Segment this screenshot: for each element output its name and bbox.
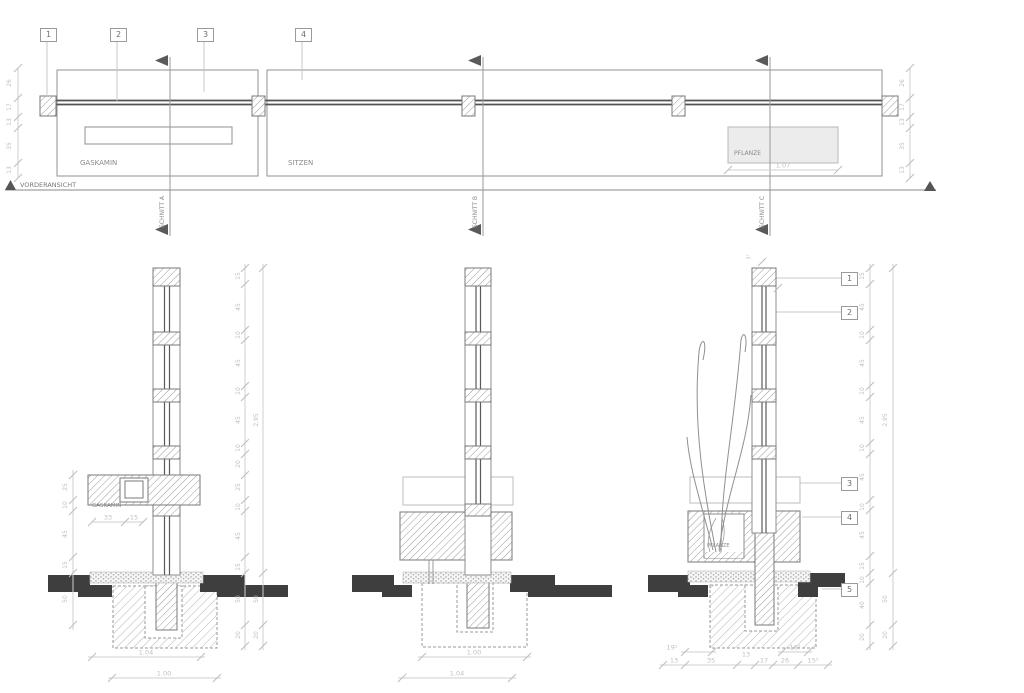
dim-label: 26 — [7, 79, 13, 87]
cut-label-a: SCHNITT A — [160, 196, 166, 228]
architectural-drawing-sheet: 1 2 3 4 GASKAMIN SITZEN PFLANZE 1.07 VOR… — [0, 0, 1024, 693]
dim-104-a: 1.04 — [139, 650, 153, 657]
dim-overall: 2.95 — [883, 413, 889, 426]
pflanze-section-label: PFLANZE — [707, 544, 730, 549]
dim-label: 26 — [900, 79, 906, 87]
gravel-b — [403, 572, 511, 583]
dim-33: 33 — [104, 515, 112, 522]
dim-label: 19⁵ — [667, 645, 678, 652]
dim-label: 13 — [7, 118, 13, 126]
dim-label: 35 — [7, 142, 13, 150]
dim-label: 10 — [236, 503, 242, 511]
dim-label: 45 — [236, 359, 242, 367]
post-a — [153, 268, 180, 575]
dim-100-b: 1.00 — [467, 650, 481, 657]
dim-label: 15⁵ — [808, 658, 819, 665]
dim-15: 15 — [130, 515, 138, 522]
dim-label: 13 — [900, 166, 906, 174]
dim-label: 45 — [860, 473, 866, 481]
dim-label: 45 — [860, 303, 866, 311]
dim-label: 20 — [236, 460, 242, 468]
technical-drawing-canvas — [0, 0, 1024, 693]
dim-label: 45 — [860, 359, 866, 367]
dim-label: 10 — [63, 501, 69, 509]
dim-label: 15 — [236, 563, 242, 571]
gaskamin-section-label: GASKAMIN — [92, 504, 121, 510]
dim-overall: 50 — [254, 595, 260, 603]
dim-label: 10 — [860, 387, 866, 395]
dim-100-a: 1.00 — [157, 671, 171, 678]
post-below-grade-c — [755, 533, 774, 625]
pflanze-label: PFLANZE — [734, 151, 761, 157]
gaskamin-label: GASKAMIN — [80, 160, 117, 167]
view-title: VORDERANSICHT — [20, 182, 76, 189]
dim-label: 25 — [63, 483, 69, 491]
dim-label: 45 — [63, 530, 69, 538]
dim-label: 45 — [236, 303, 242, 311]
section-a-geometry — [48, 268, 288, 648]
cut-label-c: SCHNITT C — [760, 196, 766, 228]
marker-4: 4 — [295, 28, 312, 42]
dim-overall: 20 — [254, 631, 260, 639]
marker-c-4: 4 — [841, 511, 858, 525]
dim-label: 15 — [63, 561, 69, 569]
dim-label: 20 — [860, 633, 866, 641]
front-elevation-geometry — [5, 70, 936, 191]
dim-label: 10 — [860, 331, 866, 339]
dim-label: 13 — [900, 118, 906, 126]
planter-soil-c — [705, 552, 743, 558]
marker-1: 1 — [40, 28, 57, 42]
rail-posts — [40, 96, 898, 116]
dim-label: 13 — [7, 166, 13, 174]
marker-c-1: 1 — [841, 272, 858, 286]
section-cut-lines — [155, 55, 770, 236]
section-c-geometry — [648, 268, 845, 648]
seat-outline-b — [403, 477, 513, 505]
dim-label: 10 — [860, 576, 866, 584]
dim-overall: 20 — [883, 631, 889, 639]
seat-block-b — [400, 512, 512, 560]
dim-label: 16⁵ — [790, 645, 801, 652]
dim-label: 17 — [900, 103, 906, 111]
dim-label: 10 — [236, 444, 242, 452]
dim-label: 20 — [236, 631, 242, 639]
fire-opening — [85, 127, 232, 144]
sitzen-label: SITZEN — [288, 160, 313, 167]
dim-label: 17 — [7, 103, 13, 111]
dim-overall: 50 — [883, 595, 889, 603]
gravel-c — [688, 571, 810, 582]
dim-label: 45 — [860, 416, 866, 424]
marker-c-2: 2 — [841, 306, 858, 320]
baseline-arrows — [5, 180, 936, 191]
dim-label: 15 — [860, 272, 866, 280]
cut-arrows — [155, 55, 768, 235]
dim-label: 45 — [236, 416, 242, 424]
dim-label: 26 — [781, 658, 789, 665]
dim-label: 13 — [742, 652, 750, 659]
dim-label: 25 — [236, 483, 242, 491]
dim-label: 10 — [236, 387, 242, 395]
dim-104-b: 1.04 — [450, 671, 464, 678]
dim-label: 40 — [860, 601, 866, 609]
dim-label: 45 — [236, 532, 242, 540]
pflanze-width-dim: 1.07 — [776, 163, 790, 170]
dim-label: 45 — [860, 531, 866, 539]
dim-label: 35 — [707, 658, 715, 665]
dim-label: 10 — [236, 331, 242, 339]
dim-label: 15 — [236, 272, 242, 280]
post-b — [465, 268, 491, 575]
marker-3: 3 — [197, 28, 214, 42]
cut-label-b: SCHNITT B — [473, 196, 479, 228]
dim-label: 10 — [860, 503, 866, 511]
marker-c-5: 5 — [841, 583, 858, 597]
marker-2: 2 — [110, 28, 127, 42]
dim-overall: 2.95 — [254, 413, 260, 426]
marker-c-3: 3 — [841, 477, 858, 491]
section-b-geometry — [352, 268, 612, 647]
dim-label: 50 — [63, 595, 69, 603]
gravel-a — [90, 572, 203, 583]
dim-label: 35 — [900, 142, 906, 150]
dim-label: 17 — [760, 658, 768, 665]
dim-label: 10 — [860, 444, 866, 452]
dim-label: 50 — [236, 595, 242, 603]
planter-elevation — [728, 127, 838, 163]
dim-label: 15 — [860, 562, 866, 570]
dim-top-c: 3⁵ — [748, 254, 753, 259]
dim-label: 13 — [670, 658, 678, 665]
